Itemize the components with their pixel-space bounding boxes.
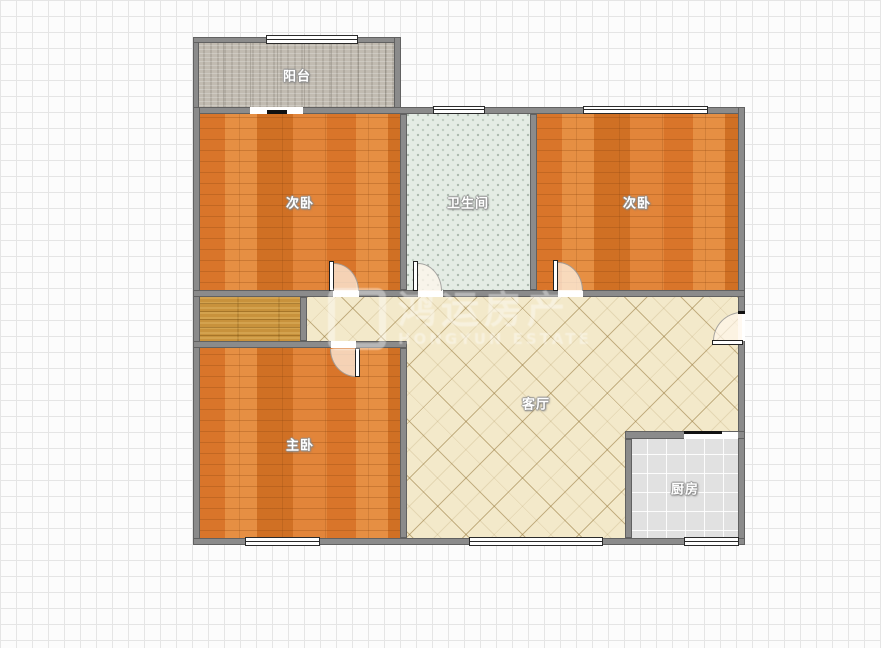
master-door-gap	[331, 341, 356, 348]
wall-balcony-right	[394, 37, 401, 109]
bathroom-window	[433, 106, 485, 114]
wall-bedroomleft-bathroom	[400, 114, 407, 290]
wall-master-top	[193, 341, 407, 348]
bathroom-label: 卫生间	[447, 193, 489, 212]
wall-master-right	[400, 348, 407, 538]
bedroom-left-door-gap	[333, 290, 359, 297]
floorplan-canvas: 阳台 次卧 卫生间 次卧 主卧 客厅 厨房 鸿运房产 HONGYUN ESTAT…	[0, 0, 881, 648]
wall-closet-right	[300, 297, 307, 341]
wall-left	[193, 107, 200, 545]
bedroom-right-door	[553, 260, 558, 291]
bedroom-right-door-gap	[558, 290, 583, 297]
master-bedroom-label: 主卧	[286, 435, 314, 454]
bedroom-left-label: 次卧	[286, 193, 314, 212]
master-bedroom-window	[245, 537, 320, 546]
entrance-door	[712, 340, 743, 345]
kitchen-label: 厨房	[671, 479, 699, 498]
bedroom-right-window	[583, 106, 708, 114]
kitchen-window	[684, 537, 739, 546]
master-door	[355, 348, 360, 377]
wall-balcony-left	[193, 37, 199, 109]
living-room-label: 客厅	[522, 394, 550, 413]
balcony-window	[266, 35, 358, 44]
living-room-window	[469, 537, 603, 546]
entrance-door-lintel	[738, 311, 745, 314]
bathroom-door	[413, 261, 418, 291]
balcony-sliding-door-panel	[267, 110, 287, 114]
closet-floor	[196, 293, 304, 344]
bedroom-left-door	[329, 261, 334, 291]
kitchen-opening-lintel	[684, 431, 722, 434]
wall-kitchen-left	[625, 439, 632, 538]
wall-bathroom-bedroomright	[530, 114, 537, 290]
bedroom-right-label: 次卧	[623, 193, 651, 212]
balcony-label: 阳台	[283, 66, 311, 85]
wall-middle-horizontal	[193, 290, 745, 297]
bathroom-door-gap	[418, 290, 443, 297]
